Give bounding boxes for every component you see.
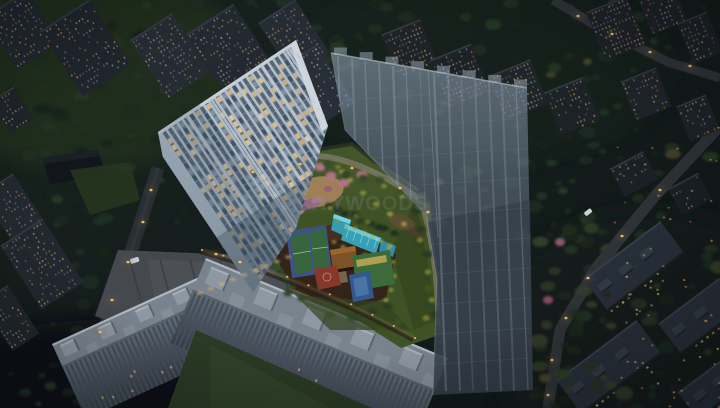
- svg-text:CITYWOODS: CITYWOODS: [296, 193, 428, 215]
